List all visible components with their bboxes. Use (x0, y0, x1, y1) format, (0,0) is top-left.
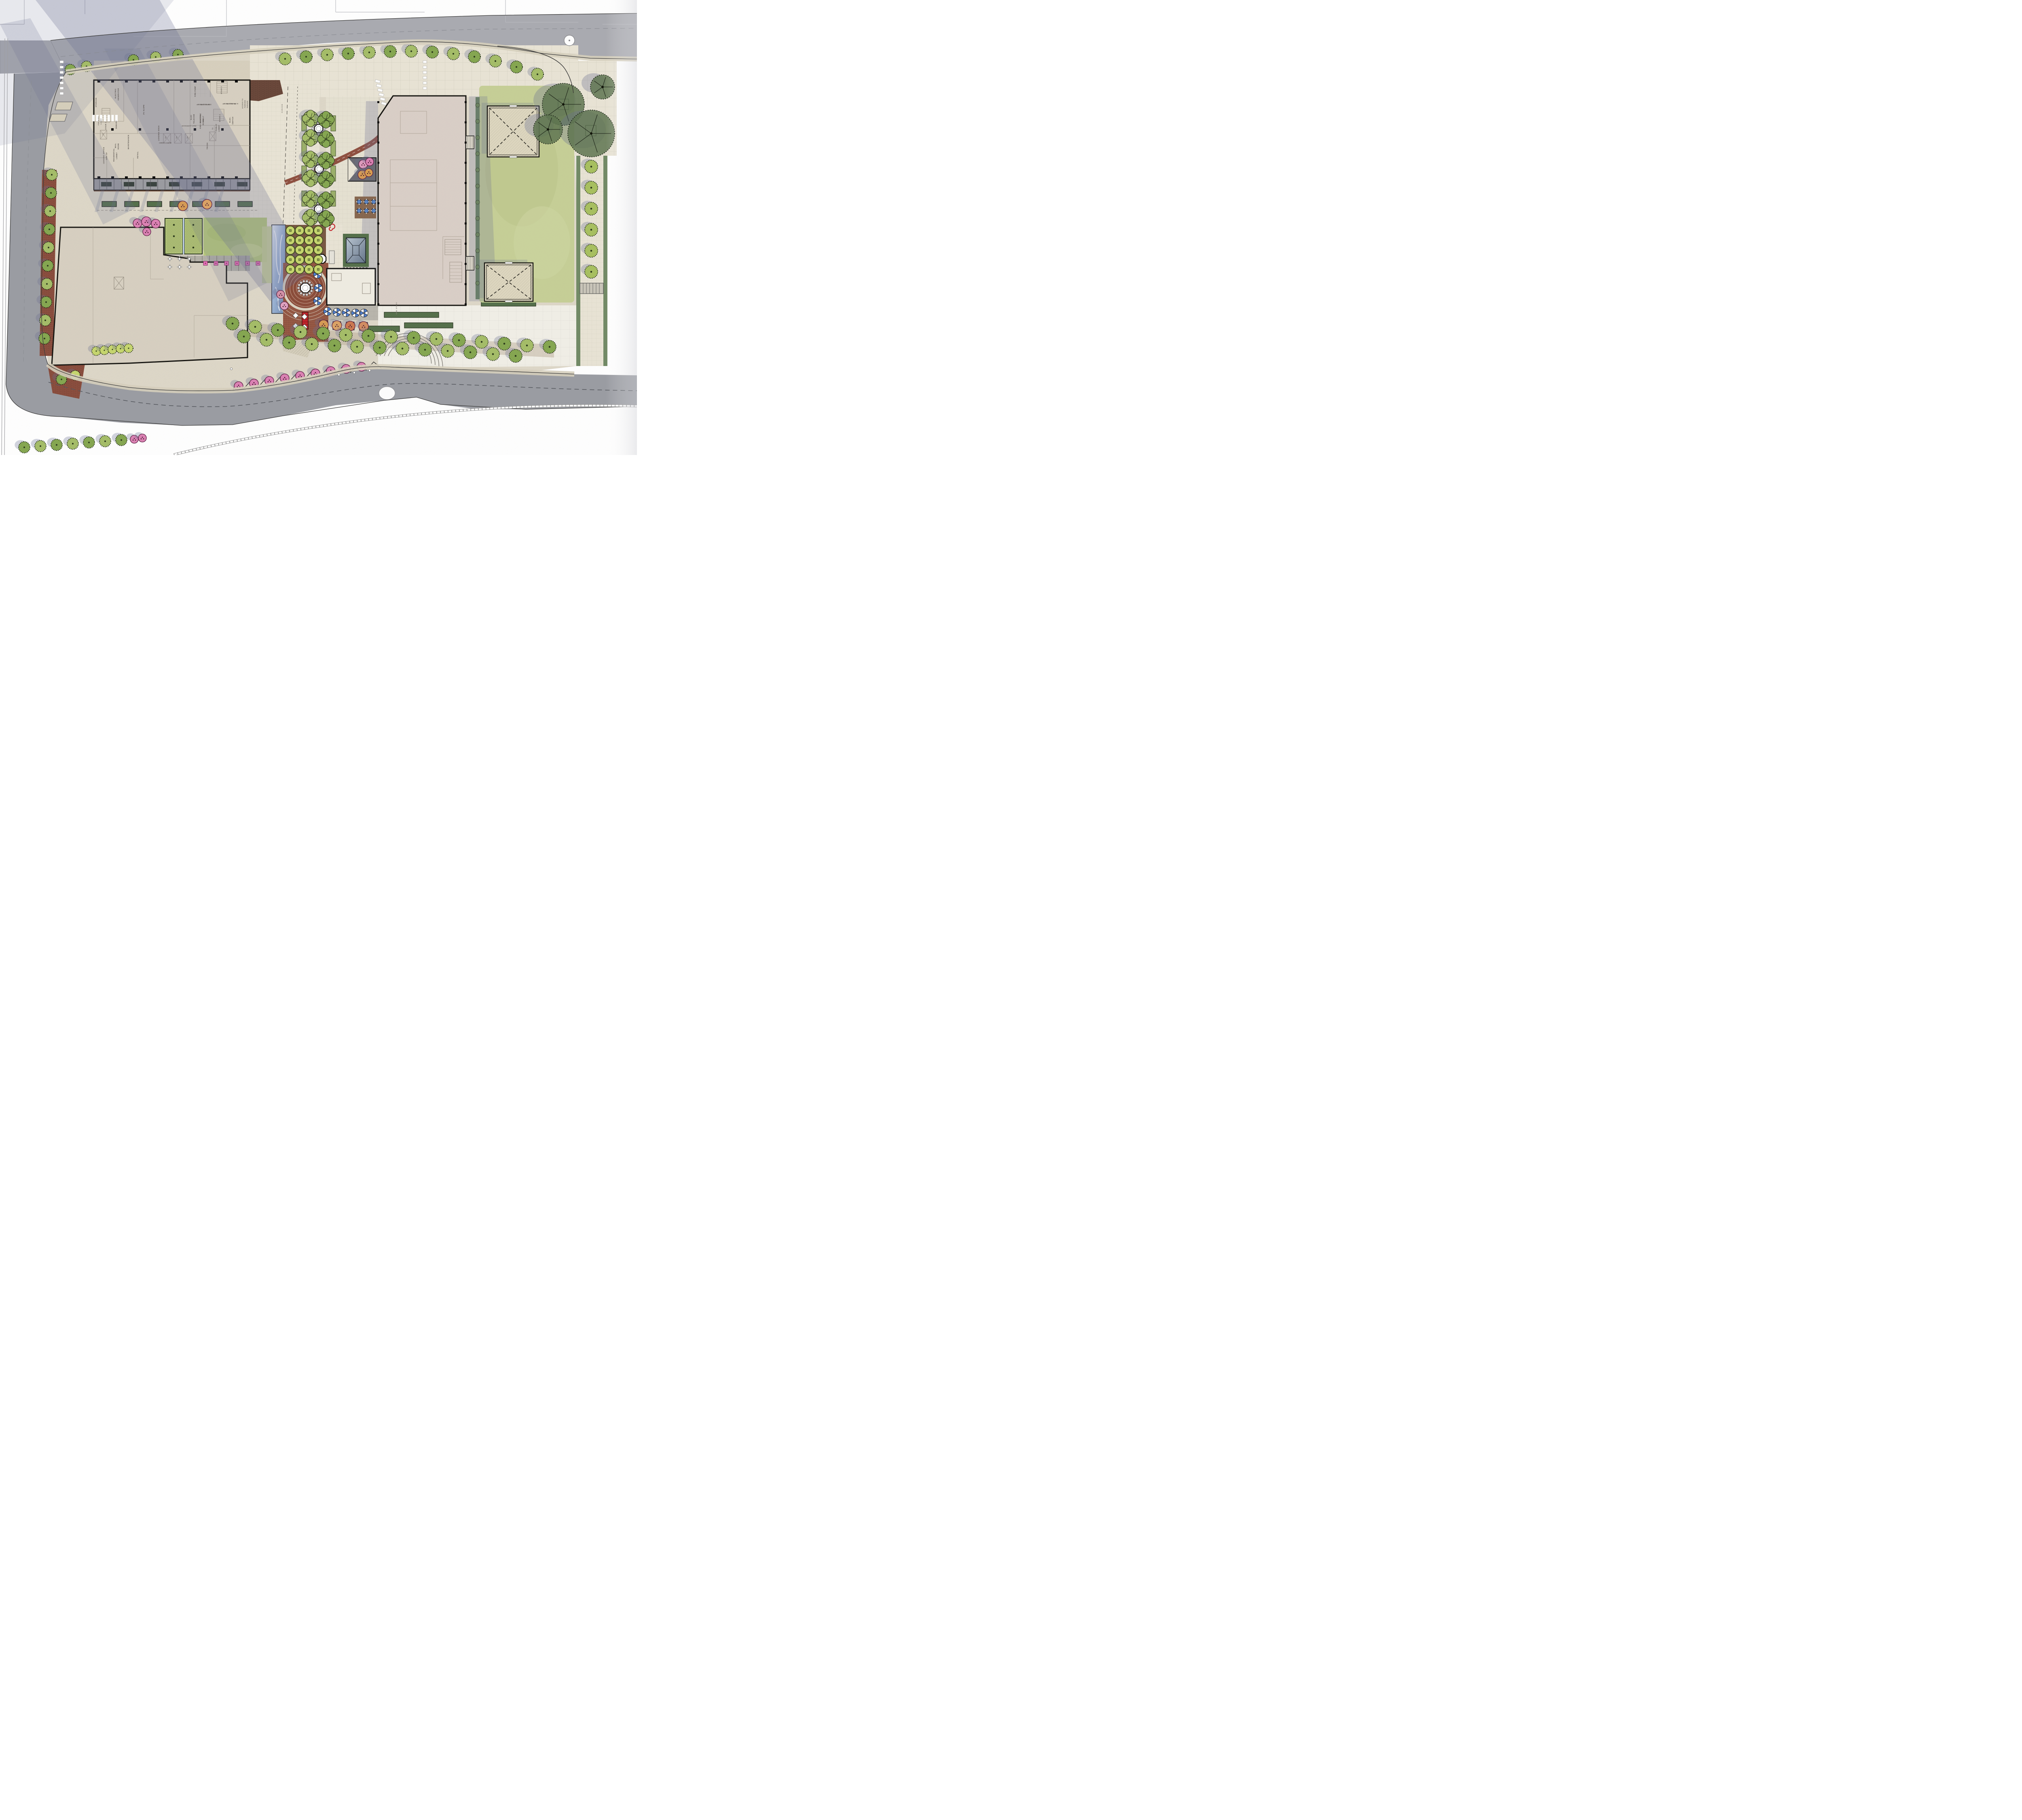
paper-texture-overlay (0, 0, 637, 455)
site-plan-canvas: STORAGEELECTRICGENERATORDEMARCMAILROOMMA… (0, 0, 637, 455)
east-edge-fade (606, 0, 637, 455)
site-plan-page: STORAGEELECTRICGENERATORDEMARCMAILROOMMA… (0, 0, 637, 455)
